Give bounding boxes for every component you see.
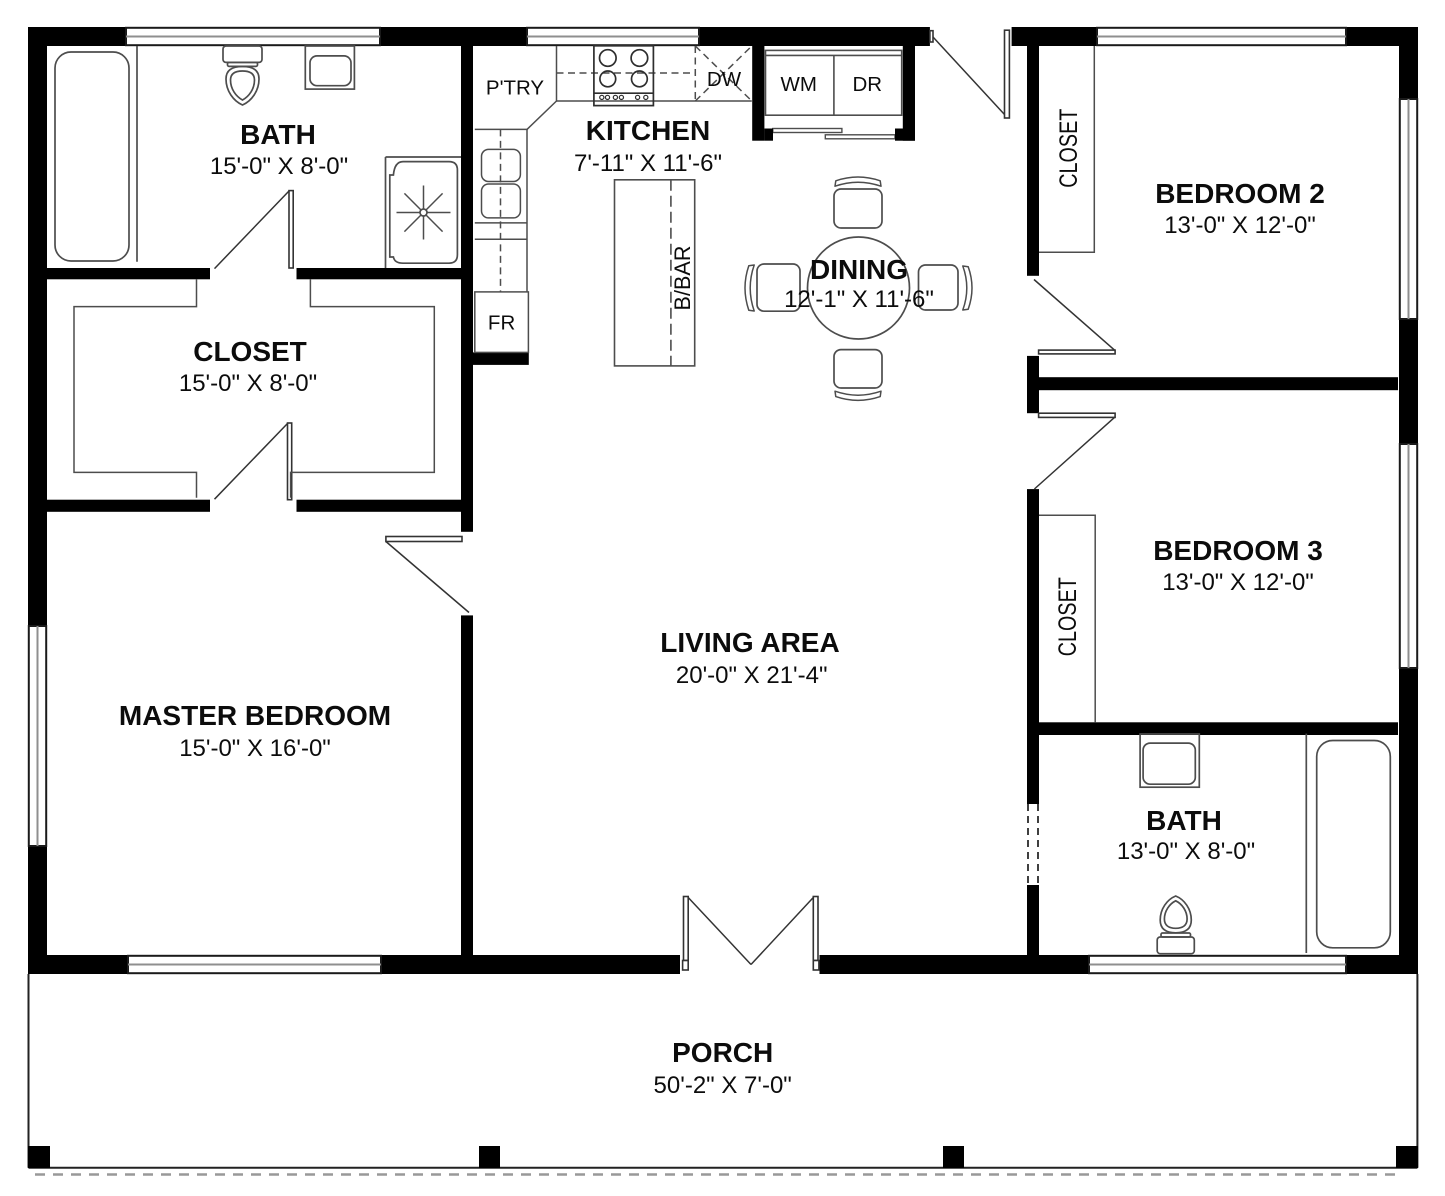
svg-text:15'-0" X 8'-0": 15'-0" X 8'-0" [210,153,348,180]
svg-text:PORCH: PORCH [672,1037,773,1068]
svg-text:13'-0" X 12'-0": 13'-0" X 12'-0" [1162,569,1314,596]
svg-text:CLOSET: CLOSET [193,336,307,367]
svg-text:50'-2" X 7'-0": 50'-2" X 7'-0" [654,1072,792,1099]
svg-text:LIVING AREA: LIVING AREA [660,627,839,658]
svg-text:CLOSET: CLOSET [1055,109,1083,188]
svg-text:15'-0" X 8'-0": 15'-0" X 8'-0" [179,370,317,397]
svg-text:BATH: BATH [1146,805,1222,836]
svg-text:15'-0" X 16'-0": 15'-0" X 16'-0" [179,735,331,762]
svg-text:MASTER BEDROOM: MASTER BEDROOM [119,700,391,731]
svg-text:7'-11" X 11'-6": 7'-11" X 11'-6" [574,150,722,177]
svg-text:BATH: BATH [240,119,316,150]
svg-text:BEDROOM 2: BEDROOM 2 [1155,178,1325,209]
svg-text:13'-0" X 12'-0": 13'-0" X 12'-0" [1164,212,1316,239]
svg-text:CLOSET: CLOSET [1054,577,1082,656]
svg-text:20'-0" X 21'-4": 20'-0" X 21'-4" [676,662,828,689]
svg-text:WM: WM [780,73,816,96]
svg-text:12'-1" X 11'-6": 12'-1" X 11'-6" [784,286,934,313]
svg-text:DINING: DINING [810,254,908,285]
svg-text:DW: DW [707,68,742,91]
svg-text:B/BAR: B/BAR [670,246,695,311]
svg-text:FR: FR [488,312,515,335]
svg-text:P'TRY: P'TRY [486,77,545,100]
svg-text:13'-0" X 8'-0": 13'-0" X 8'-0" [1117,838,1255,865]
svg-text:DR: DR [852,73,882,96]
svg-text:BEDROOM 3: BEDROOM 3 [1153,535,1323,566]
svg-text:KITCHEN: KITCHEN [586,115,710,146]
